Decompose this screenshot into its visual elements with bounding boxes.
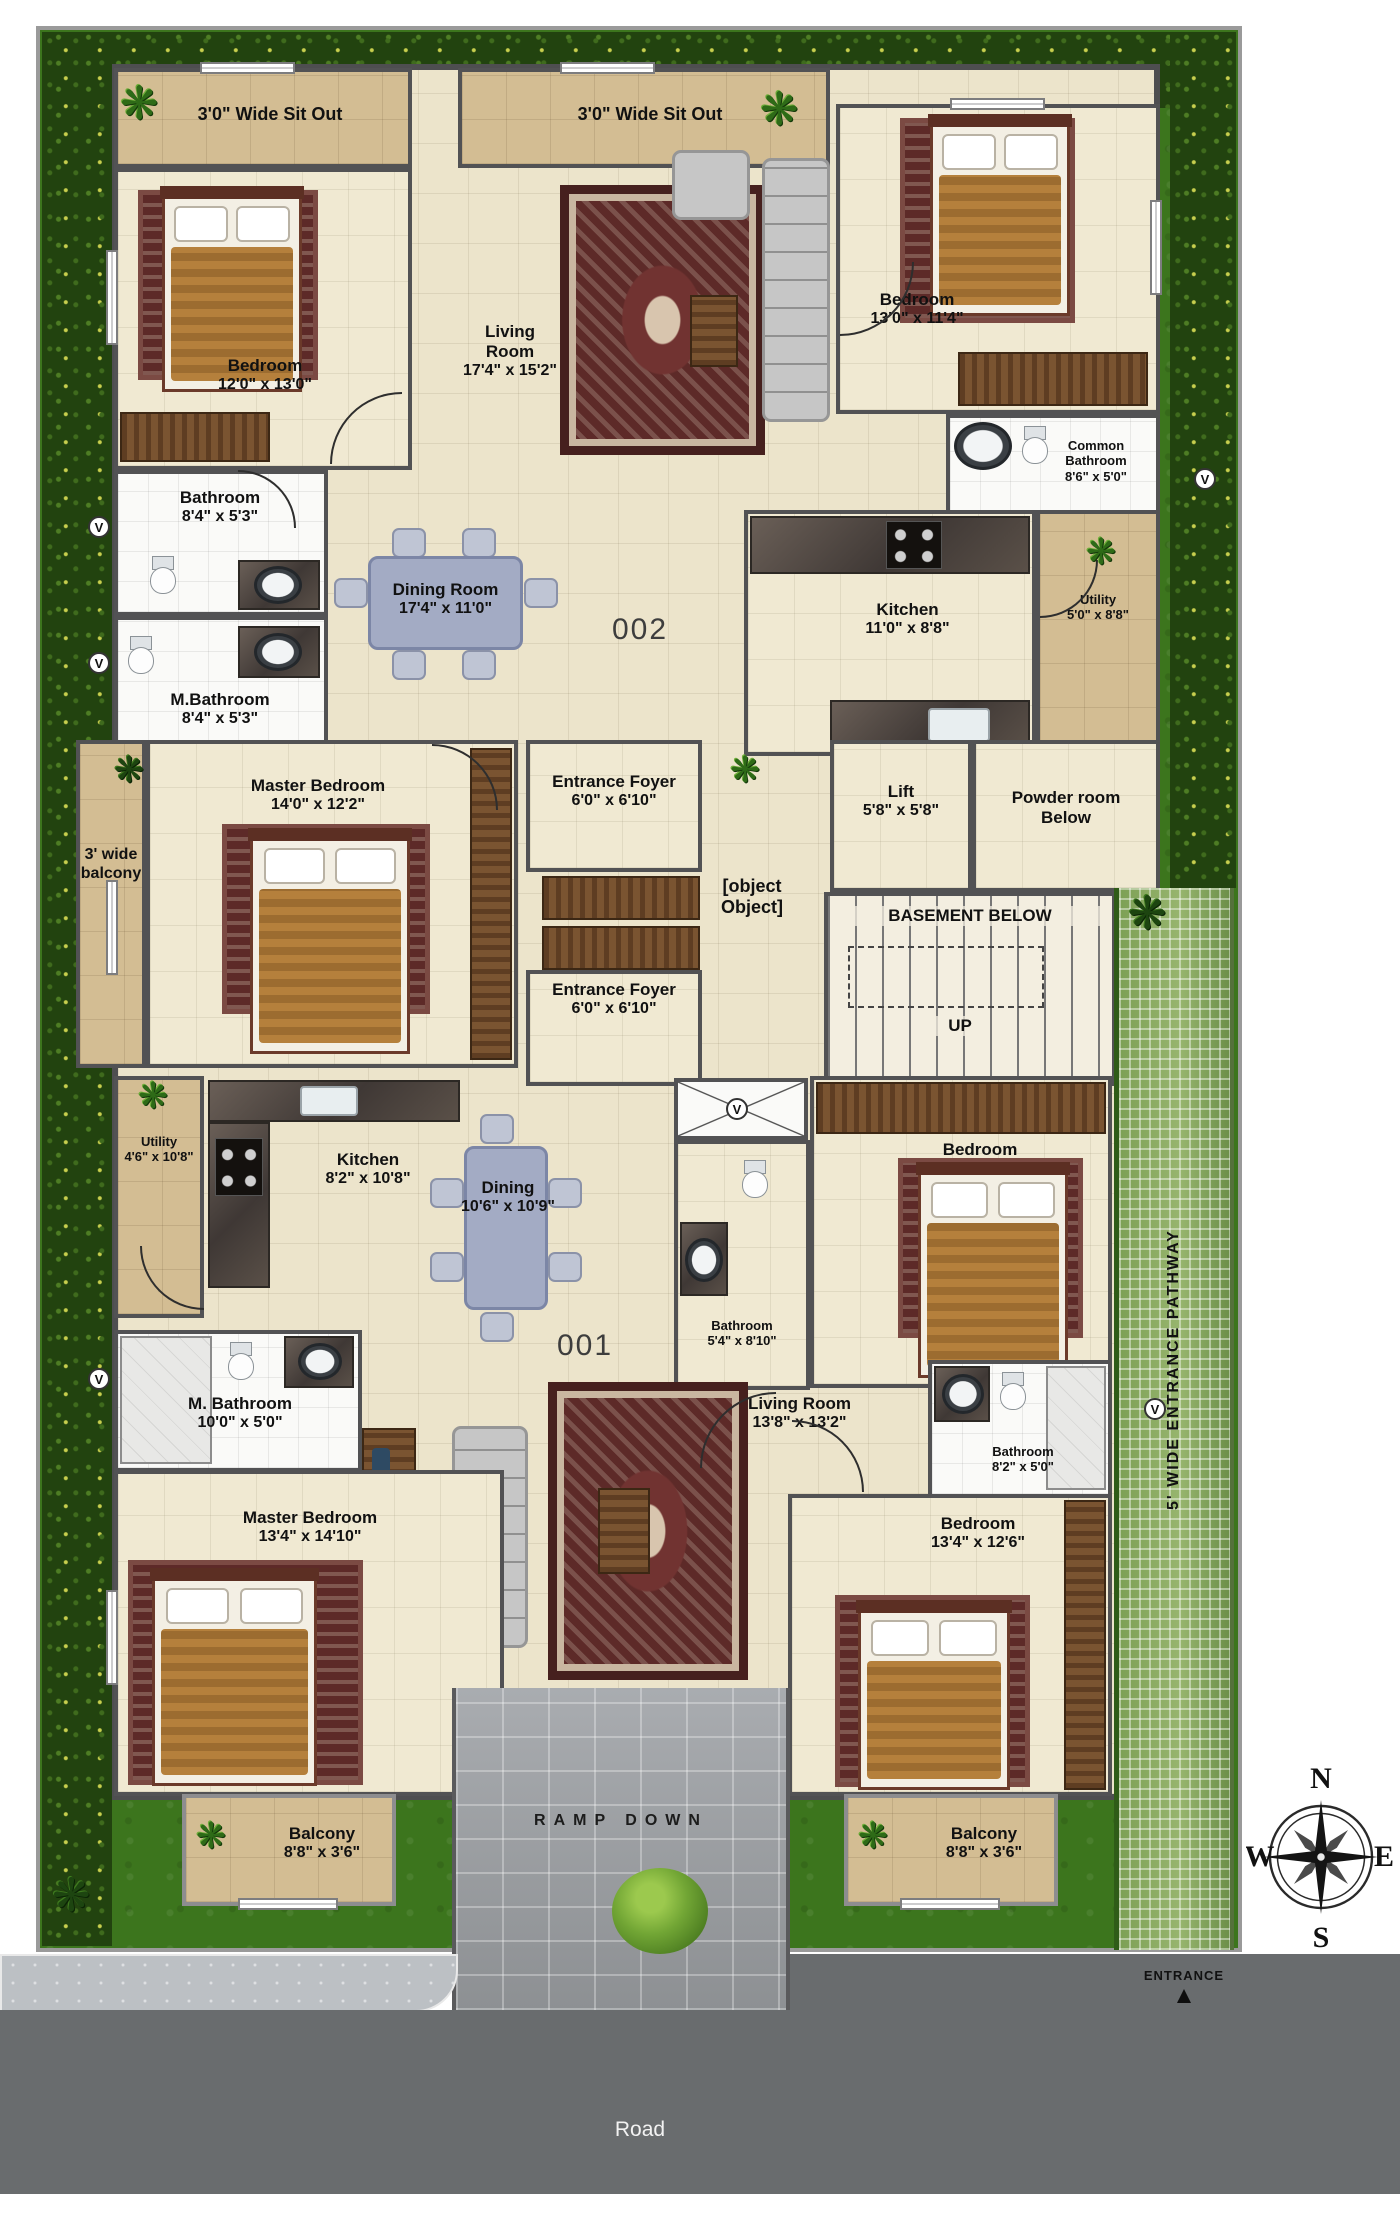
road: [0, 2010, 1400, 2194]
m-bathroom-002-label: M.Bathroom 8'4" x 5'3": [130, 690, 310, 729]
toilet: [128, 636, 154, 674]
vent-icon: V: [88, 516, 110, 538]
floor-plan-canvas: 3'0" Wide Sit Out 3'0" Wide Sit Out Bedr…: [0, 0, 1400, 2214]
plant-icon: ❋: [760, 86, 799, 132]
plant-icon: ❋: [730, 752, 760, 788]
washbasin: [942, 1374, 984, 1414]
vent-icon: V: [88, 1368, 110, 1390]
bed: [918, 1172, 1068, 1378]
plant-icon: ❋: [858, 1818, 888, 1854]
compass-s: S: [1313, 1921, 1330, 1950]
foyer-002-label: Entrance Foyer 6'0" x 6'10": [534, 772, 694, 811]
m-bathroom-001-label: M. Bathroom 10'0" x 5'0": [150, 1394, 330, 1433]
window: [950, 98, 1045, 110]
plant-icon: ❋: [114, 752, 144, 788]
plant-icon: ❋: [1086, 534, 1116, 570]
chair: [462, 650, 496, 680]
chair: [480, 1114, 514, 1144]
powder-label: Powder room Below: [994, 788, 1138, 828]
window: [1150, 200, 1162, 295]
dining-002-label: Dining Room 17'4" x 11'0": [358, 580, 533, 619]
wardrobe: [120, 412, 270, 462]
bedroom-002-left-label: Bedroom 12'0" x 13'0": [160, 356, 370, 395]
window: [106, 1590, 118, 1685]
stove: [215, 1138, 263, 1196]
balcony-left-label: Balcony 8'8" x 3'6": [252, 1824, 392, 1863]
foyer-001-label: Entrance Foyer 6'0" x 6'10": [546, 980, 682, 1019]
dining-001-label: Dining 10'6" x 10'9": [438, 1178, 578, 1217]
coffee-table: [598, 1488, 650, 1574]
chair: [480, 1312, 514, 1342]
toilet: [228, 1342, 254, 1380]
vent-icon: V: [1194, 468, 1216, 490]
window: [106, 250, 118, 345]
ramp-label: RAMP DOWN: [468, 1812, 774, 1831]
compass-rose: N W E S: [1246, 1764, 1396, 1950]
toilet: [742, 1160, 768, 1198]
sitout-left-label: 3'0" Wide Sit Out: [150, 104, 390, 125]
road-label: Road: [580, 2118, 700, 2143]
master-001-label: Master Bedroom 13'4" x 14'10": [200, 1508, 420, 1547]
balcony-002-label: 3' wide balcony: [77, 846, 145, 884]
window: [106, 880, 118, 975]
pathway-label: 5' WIDE ENTRANCE PATHWAY: [1124, 1020, 1224, 1720]
bed: [858, 1610, 1010, 1790]
kitchen-sink: [928, 708, 990, 742]
washbasin: [298, 1343, 342, 1380]
vent-icon: V: [726, 1098, 748, 1120]
plant-icon: ❋: [138, 1078, 168, 1114]
kitchen-002-label: Kitchen 11'0" x 8'8": [840, 600, 975, 639]
hedge-right: [1170, 32, 1236, 888]
master-002-label: Master Bedroom 14'0" x 12'2": [198, 776, 438, 815]
sidewalk: [0, 1954, 458, 2012]
wardrobe: [542, 876, 700, 920]
chair: [462, 528, 496, 558]
washbasin: [685, 1238, 723, 1282]
sitout-right-label: 3'0" Wide Sit Out: [520, 104, 780, 125]
stair-guide: [848, 946, 1044, 1008]
unit-001-label: 001: [545, 1328, 625, 1363]
ramp: [452, 1688, 790, 2010]
lift-label: Lift 5'8" x 5'8": [838, 782, 964, 821]
plant-icon: ❋: [1128, 890, 1167, 936]
chair: [392, 650, 426, 680]
entrance-arrow-icon: ▲: [1158, 1984, 1210, 2008]
kitchen-sink: [300, 1086, 358, 1116]
vent-icon: V: [88, 652, 110, 674]
wardrobe: [958, 352, 1148, 406]
compass-n: N: [1310, 1764, 1332, 1795]
plant-icon: ❋: [196, 1818, 226, 1854]
bed: [930, 124, 1070, 316]
washbasin: [954, 422, 1012, 470]
lobby-label: [object Object]: [704, 876, 800, 918]
balcony-right-label: Balcony 8'8" x 3'6": [914, 1824, 1054, 1863]
stove: [886, 521, 942, 569]
vent-icon: V: [1144, 1398, 1166, 1420]
sofa: [762, 158, 830, 422]
basement-label: BASEMENT BELOW: [830, 906, 1110, 926]
toilet: [150, 556, 176, 594]
armchair: [672, 150, 750, 220]
window: [900, 1898, 1000, 1910]
common-bathroom-label: Common Bathroom 8'6" x 5'0": [1040, 438, 1152, 484]
wardrobe: [542, 926, 700, 970]
chair: [430, 1252, 464, 1282]
unit-002-label: 002: [600, 612, 680, 647]
toilet: [1000, 1372, 1026, 1410]
bathroom-001-right-label: Bathroom 8'2" x 5'0": [948, 1444, 1098, 1475]
window: [200, 62, 295, 74]
chair: [392, 528, 426, 558]
compass-w: W: [1246, 1840, 1275, 1873]
utility-001-label: Utility 4'6" x 10'8": [117, 1134, 201, 1165]
washbasin: [254, 633, 302, 671]
plant-icon: ❋: [52, 1872, 91, 1918]
road-shoulder: [790, 1954, 1400, 2012]
coffee-table: [690, 295, 738, 367]
plant-icon: ❋: [120, 80, 159, 126]
bedroom-001-right-label: Bedroom 13'4" x 12'6": [878, 1514, 1078, 1553]
bathroom-001-small-label: Bathroom 5'4" x 8'10": [680, 1318, 804, 1349]
wardrobe: [816, 1082, 1106, 1134]
chair: [548, 1252, 582, 1282]
up-label: UP: [930, 1016, 990, 1036]
bed: [250, 838, 410, 1054]
kitchen-001-label: Kitchen 8'2" x 10'8": [288, 1150, 448, 1189]
bush-icon: [612, 1868, 708, 1954]
dining-table-001: [464, 1146, 548, 1310]
window: [238, 1898, 338, 1910]
window: [560, 62, 655, 74]
compass-e: E: [1374, 1840, 1394, 1873]
washbasin: [254, 566, 302, 604]
bed: [152, 1578, 317, 1786]
